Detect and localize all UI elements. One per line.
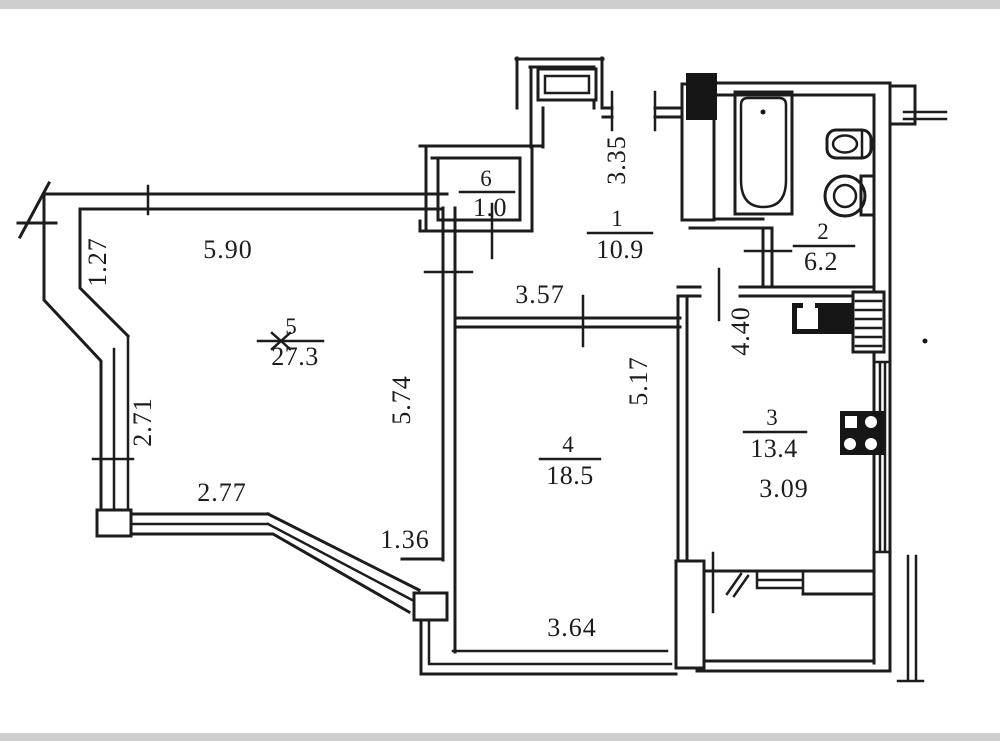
room-label-6: 6 1.0 [460, 166, 514, 222]
bay-corner-post-left [97, 510, 131, 536]
floor-plan-page: 5 27.3 4 18.5 3 13.4 1 10.9 2 6.2 6 1.0 … [0, 0, 1000, 741]
room-area-1: 10.9 [596, 235, 644, 264]
dim-4-40: 4.40 [726, 306, 755, 356]
dim-2-71: 2.71 [128, 397, 157, 447]
room-label-2: 2 6.2 [794, 219, 854, 276]
dim-3-57: 3.57 [515, 280, 565, 309]
dim-5-74: 5.74 [387, 375, 416, 425]
toilet-icon [825, 176, 874, 216]
dim-5-90: 5.90 [203, 235, 253, 264]
scan-edge-top [0, 0, 1000, 9]
room-number-6: 6 [480, 166, 492, 191]
room-number-3: 3 [766, 405, 778, 430]
room-label-4: 4 18.5 [540, 432, 600, 490]
wash-basin-icon [827, 130, 871, 158]
room-area-4: 18.5 [546, 461, 594, 490]
dim-3-64: 3.64 [547, 613, 597, 642]
kitchen-sink-counter-icon [792, 300, 854, 334]
room-area-5: 27.3 [271, 342, 319, 371]
room-area-2: 6.2 [804, 247, 838, 276]
bathtub-icon [735, 92, 792, 214]
room-area-6: 1.0 [473, 193, 507, 222]
dim-3-35: 3.35 [602, 135, 631, 185]
bay-corner-post-right [414, 593, 447, 620]
room-label-1: 1 10.9 [588, 206, 652, 264]
room-number-1: 1 [611, 206, 623, 231]
room-label-5: 5 27.3 [258, 314, 323, 371]
structural-column [686, 73, 717, 120]
window-lines [114, 112, 946, 681]
dim-2-77: 2.77 [197, 478, 247, 507]
inner-walls [80, 58, 915, 663]
balcony-pier [676, 561, 704, 668]
room-area-3: 13.4 [750, 434, 798, 463]
dim-1-36: 1.36 [380, 525, 430, 554]
ink-speck [923, 339, 928, 344]
dim-1-27: 1.27 [83, 237, 112, 287]
stove-icon [840, 411, 884, 455]
room-label-3: 3 13.4 [744, 405, 806, 463]
dim-3-09: 3.09 [759, 474, 809, 503]
dim-5-17: 5.17 [624, 356, 653, 406]
vent-shaft-icon [853, 292, 884, 352]
floor-plan: 5 27.3 4 18.5 3 13.4 1 10.9 2 6.2 6 1.0 … [0, 0, 1000, 741]
room-number-4: 4 [562, 432, 574, 457]
room-number-2: 2 [817, 219, 829, 244]
duct-outer [538, 69, 596, 100]
scan-edge-bottom [0, 733, 1000, 741]
